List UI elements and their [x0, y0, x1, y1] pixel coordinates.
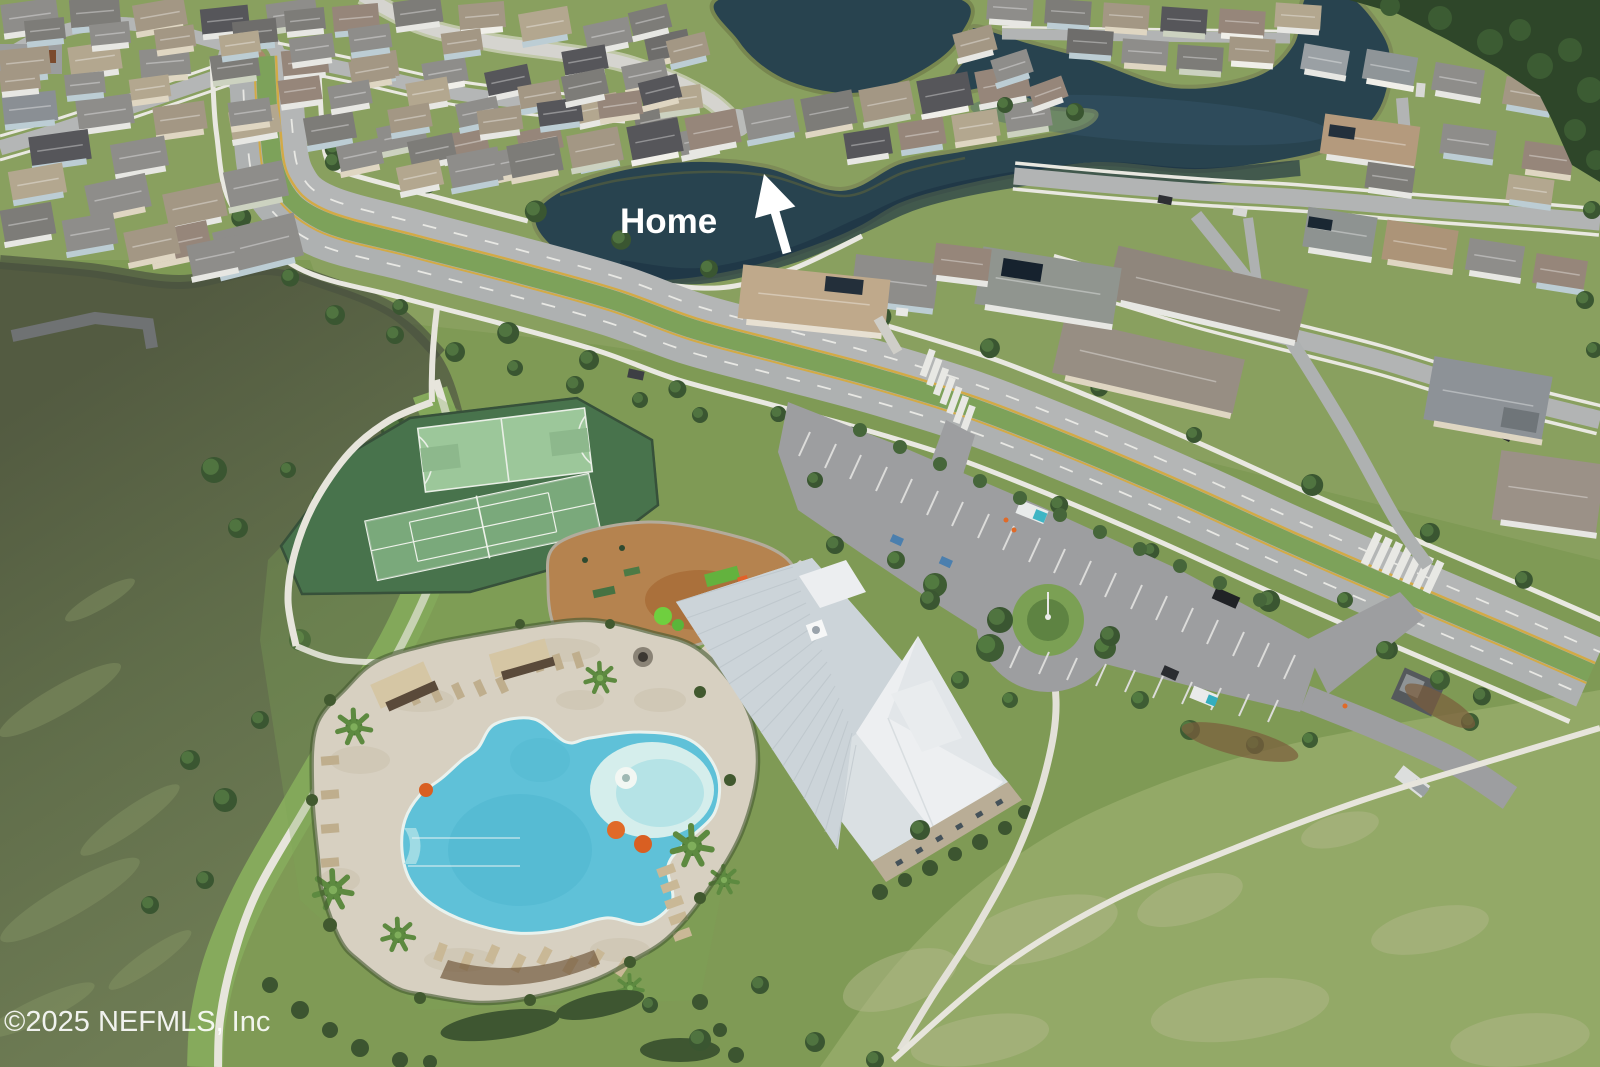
svg-text:Home: Home: [620, 202, 717, 241]
svg-text:©2025 NEFMLS, Inc: ©2025 NEFMLS, Inc: [4, 1006, 270, 1038]
